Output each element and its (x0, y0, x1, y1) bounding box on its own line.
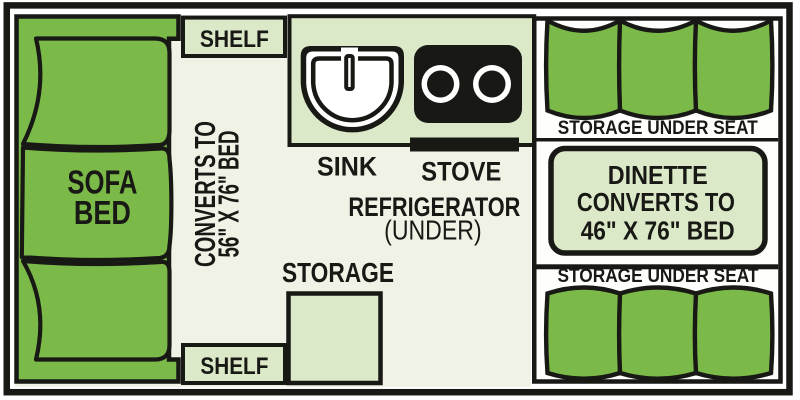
svg-text:BED: BED (74, 195, 131, 232)
svg-text:CONVERTS TO56" X 76" BED: CONVERTS TO56" X 76" BED (190, 121, 246, 267)
svg-text:DINETTE: DINETTE (608, 160, 708, 190)
svg-text:CONVERTS TO: CONVERTS TO (577, 187, 735, 217)
svg-text:46" X 76" BED: 46" X 76" BED (581, 216, 735, 246)
svg-text:SHELF: SHELF (200, 353, 268, 380)
svg-text:STORAGE: STORAGE (282, 257, 394, 288)
svg-text:SHELF: SHELF (200, 26, 269, 53)
svg-text:STORAGE UNDER SEAT: STORAGE UNDER SEAT (558, 117, 758, 139)
svg-text:(UNDER): (UNDER) (384, 215, 482, 246)
svg-text:SINK: SINK (317, 152, 377, 182)
svg-text:STOVE: STOVE (421, 156, 501, 186)
svg-text:STORAGE UNDER SEAT: STORAGE UNDER SEAT (558, 265, 759, 287)
